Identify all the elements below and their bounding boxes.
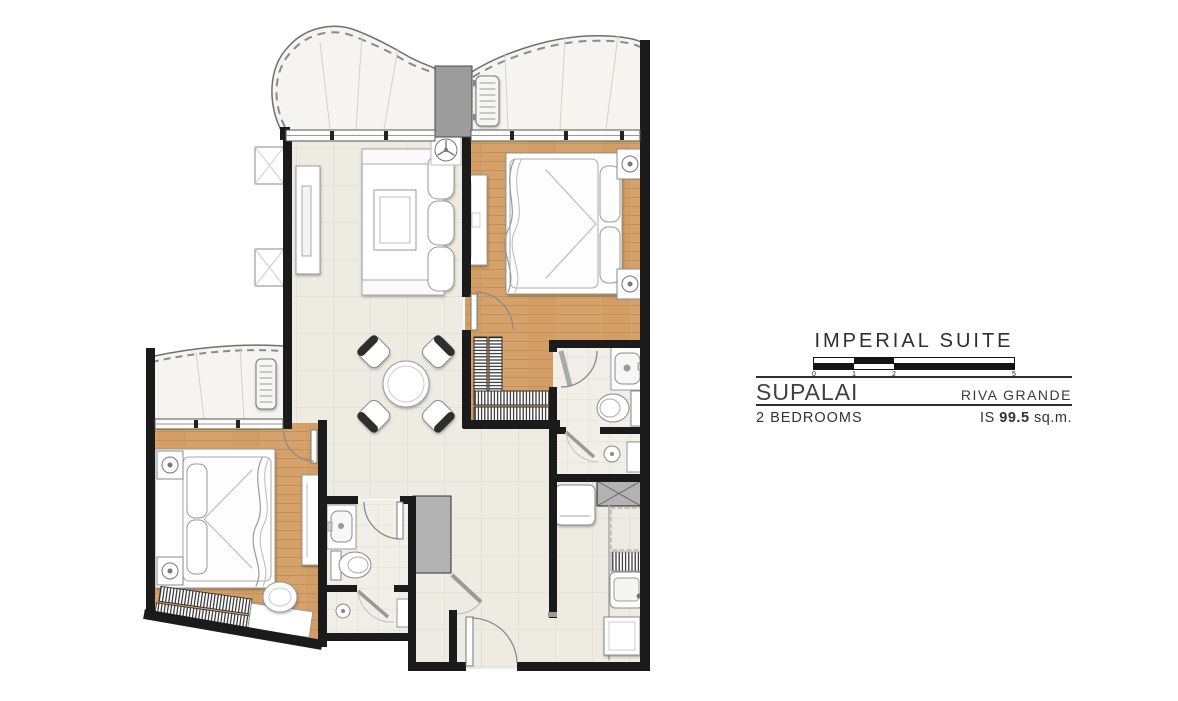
project-name: RIVA GRANDE [961,387,1072,403]
unit-title: IMPERIAL SUITE [756,330,1072,353]
window-living [286,130,435,141]
sofa-back-cushions [428,155,454,291]
brand-row: SUPALAI RIVA GRANDE [756,379,1072,406]
divider-line [756,376,1072,378]
master-bath-sink [611,347,644,390]
service-shaft [597,481,641,506]
master-bed [505,153,622,294]
dining-table [383,361,429,407]
window-bedroom-2 [155,419,283,429]
divider-line [756,404,1072,406]
unit-type: 2 BEDROOMS [756,410,863,426]
title-block: IMPERIAL SUITE 0 1 2 5 SUPALAI RIVA GRAN… [756,330,1072,430]
ac-unit-icon [473,76,499,126]
structural-column [435,66,472,137]
tv-cabinet-bedroom-2 [302,475,319,565]
nightstand [617,269,643,299]
area-unit: sq.m. [1034,410,1072,426]
balcony-living [272,26,436,140]
area-code: IS [980,410,995,426]
area-value: 99.5 [999,410,1029,426]
window-master [471,130,640,141]
developer-name: SUPALAI [756,379,858,406]
scale-bar: 0 1 2 5 [813,357,1015,370]
kitchen-appliance [604,617,640,655]
sofa [362,149,454,295]
nightstand [157,557,183,585]
wall-box-icon [255,249,284,286]
ac-unit-icon [256,359,276,409]
scale-bar-segment [814,364,854,369]
info-row: 2 BEDROOMS IS 99.5 sq.m. [756,410,1072,426]
kitchen-fridge [555,485,595,525]
door-jamb [548,612,557,617]
stool [263,582,297,612]
bathroom-2-sink [327,505,356,549]
tv-console-living [296,166,320,274]
wall-box-icon [255,147,284,184]
scale-bar-segment [894,364,1014,369]
nightstand [157,451,183,479]
dish-rack-icon [611,552,643,571]
unit-area: IS 99.5 sq.m. [980,410,1072,426]
page: IMPERIAL SUITE 0 1 2 5 SUPALAI RIVA GRAN… [0,0,1178,701]
nightstand [617,149,643,179]
entry-closet [413,496,451,573]
bathroom-2-toilet [331,551,371,580]
kitchen-sink [610,572,643,608]
